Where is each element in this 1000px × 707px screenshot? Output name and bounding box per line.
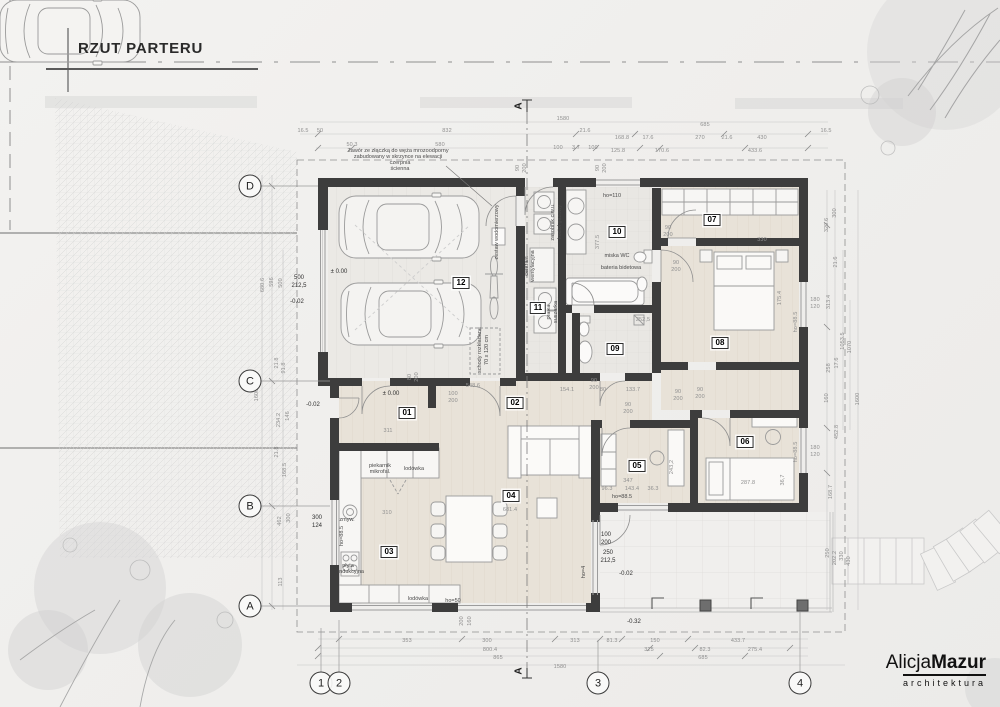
tree-icon-top-right xyxy=(861,0,1000,155)
page-title: RZUT PARTERU xyxy=(78,40,203,57)
studio-logo: AlicjaMazur architektura xyxy=(856,652,986,691)
water-meter xyxy=(492,228,505,245)
bathtub-icon xyxy=(566,278,644,305)
architectural-drawing-sheet: 158016.55083221.6168.817.627021.66854301… xyxy=(0,0,1000,707)
sink-icon xyxy=(578,341,592,363)
studio-subtitle: architektura xyxy=(903,674,986,688)
bidet-icon xyxy=(637,277,647,291)
dining-table-icon xyxy=(431,496,507,562)
studio-name-first: Alicja xyxy=(886,652,931,673)
title-smudges xyxy=(45,96,903,109)
garden-path-tiles xyxy=(832,510,1000,590)
single-bed-icon xyxy=(706,458,794,500)
studio-name: AlicjaMazur xyxy=(856,652,986,673)
floor-plan-drawing xyxy=(0,0,1000,707)
terrace-post xyxy=(700,600,711,611)
terrace-post xyxy=(797,600,808,611)
title-underline-rule xyxy=(46,68,258,70)
grass-hatch xyxy=(55,98,297,558)
coffee-table-icon xyxy=(537,498,557,518)
studio-name-bold: Mazur xyxy=(931,652,986,673)
title-vertical-rule xyxy=(67,28,69,92)
wardrobe-icon xyxy=(662,189,798,215)
